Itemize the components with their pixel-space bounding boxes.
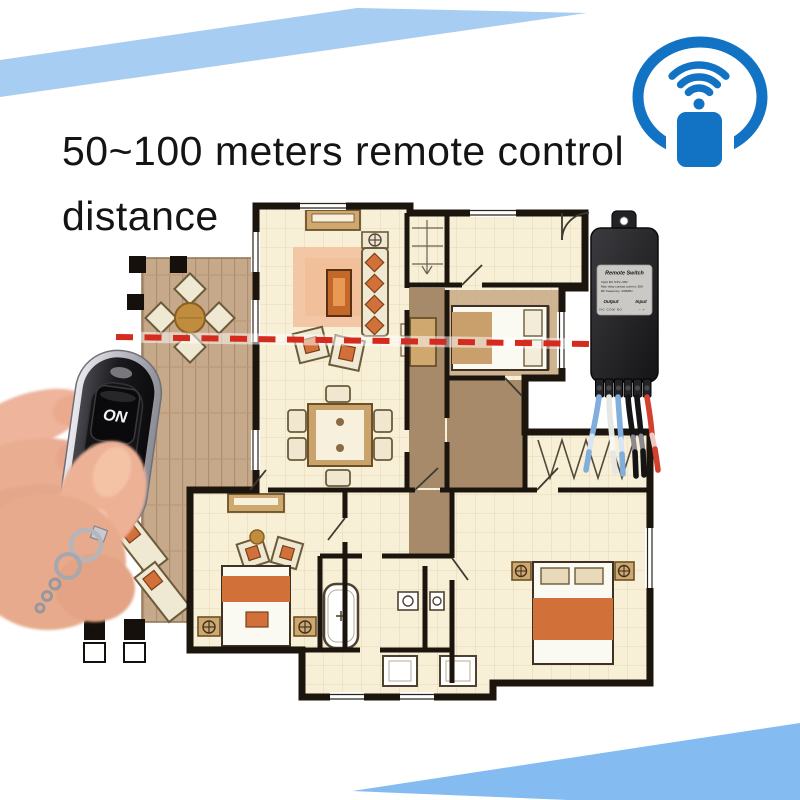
deck-pillar bbox=[170, 256, 187, 273]
wifi-remote-signal-icon bbox=[638, 42, 762, 172]
on-button: ON bbox=[90, 385, 141, 446]
sofa bbox=[362, 232, 388, 336]
module-input-terminals: − + bbox=[639, 308, 645, 312]
product-marketing-image: 50~100 meters remote control distance bbox=[0, 0, 800, 800]
module-input-label: Input bbox=[635, 299, 647, 304]
module-output-terminals: NC COM NO bbox=[600, 308, 623, 312]
module-spec2: Max relay contact current: 30A bbox=[601, 285, 644, 289]
wifi-waves bbox=[672, 65, 726, 92]
scene: Remote Switch Input DC 5.5V~28V Max rela… bbox=[0, 0, 800, 800]
wifi-dot bbox=[694, 99, 705, 110]
receiver-device-glyph bbox=[677, 112, 722, 167]
deck-pillar bbox=[124, 619, 145, 640]
module-output-label: Output bbox=[603, 299, 619, 304]
mounting-hole bbox=[620, 217, 628, 225]
floor-plan bbox=[84, 201, 654, 701]
module-spec3: RF frequency: 433MHz bbox=[601, 289, 633, 293]
module-title: Remote Switch bbox=[605, 271, 644, 277]
deck-pillar bbox=[84, 619, 105, 640]
signal-distance-line bbox=[116, 337, 592, 344]
on-button-label: ON bbox=[102, 407, 129, 427]
deck-pillar bbox=[127, 294, 144, 310]
deck-pillar bbox=[129, 256, 146, 273]
module-spec1: Input DC 5.5V~28V bbox=[601, 280, 629, 284]
